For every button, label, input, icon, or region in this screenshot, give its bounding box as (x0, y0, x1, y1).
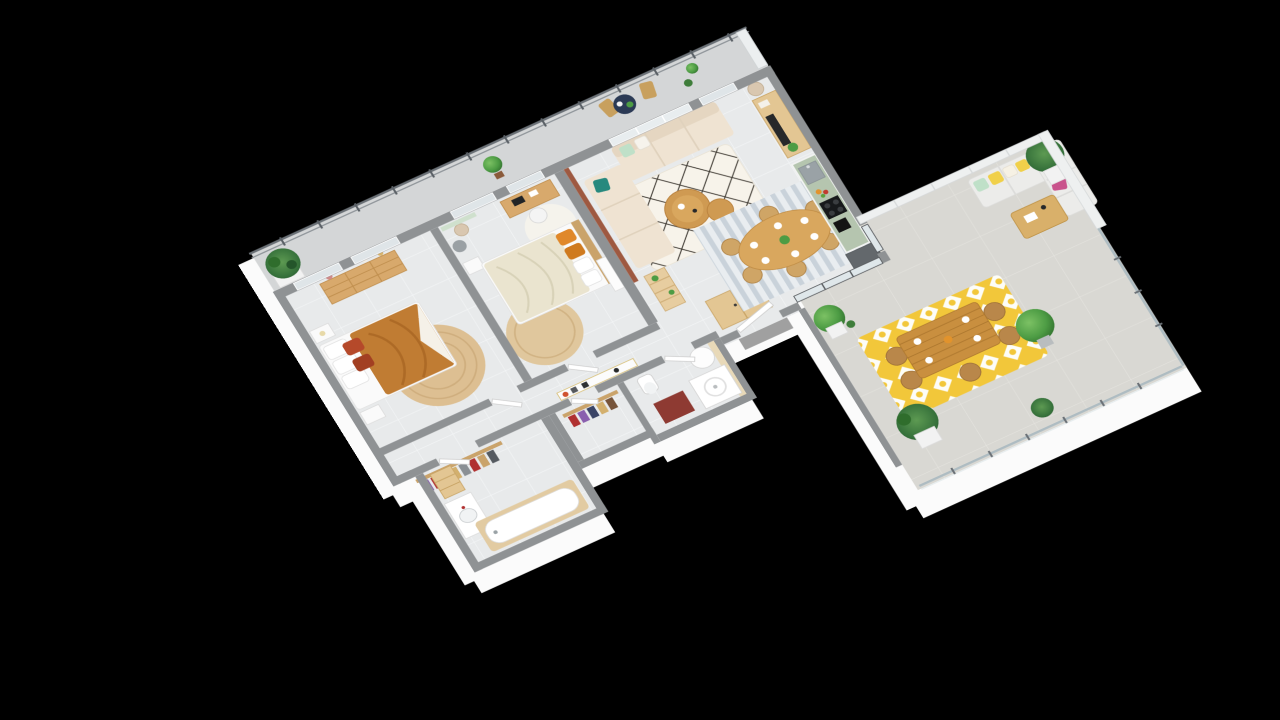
door-leaf-shower (665, 356, 695, 361)
floor-plan-rendering (248, 0, 1280, 718)
door-leaf-dressing (439, 459, 469, 464)
door-leaf-closet (572, 399, 599, 404)
render-canvas (0, 0, 1280, 720)
apartment-plan-3d (248, 0, 1280, 718)
